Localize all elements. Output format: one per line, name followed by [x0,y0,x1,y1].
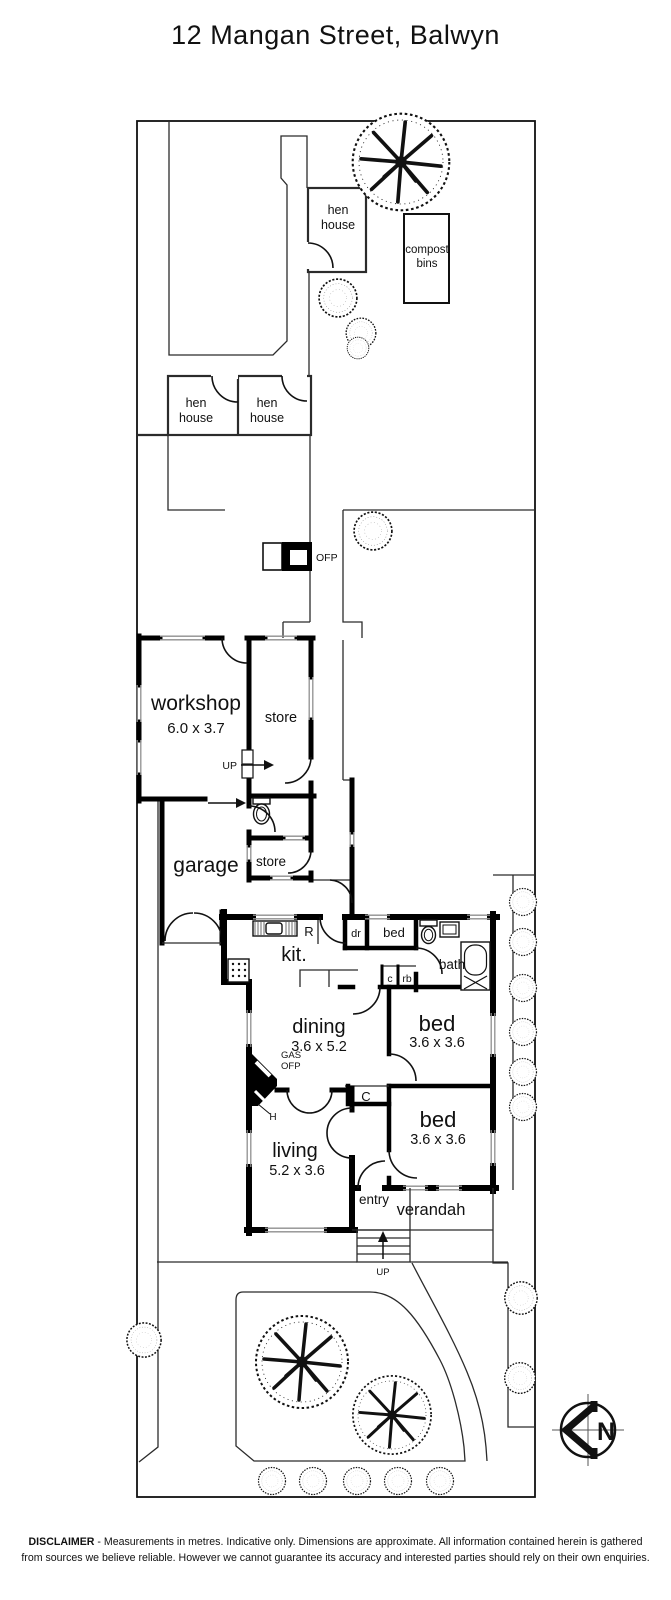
living-dims: 5.2 x 3.6 [269,1163,325,1179]
floor-plan-page: 12 Mangan Street, Balwyn [0,0,671,1600]
tree-icon [353,1376,431,1454]
workshop-dims: 6.0 x 3.7 [167,720,225,737]
bed-one-dims: 3.6 x 3.6 [409,1035,465,1051]
bush-icon [259,1468,286,1495]
compost-bins-label: compost [405,244,449,256]
entry-label: entry [359,1192,389,1207]
bush-icon [354,512,392,550]
bush-icon [510,975,537,1002]
kitchen-label: kit. [281,944,307,966]
hen-house-left-label: house [179,411,213,425]
living-label: living [272,1140,318,1162]
bush-icon [510,1019,537,1046]
garage-label: garage [173,854,238,877]
hen-house-top-label: house [321,218,355,232]
bush-icon [347,337,369,359]
verandah-label: verandah [397,1201,466,1219]
compost-bins-label: bins [416,258,437,270]
fridge-label: R [304,924,313,939]
hen-house-left-label: hen [186,396,207,410]
bush-icon [300,1468,327,1495]
compass-rose: N [552,1394,624,1466]
drawers-label: dr [351,928,361,940]
gas-ofp-label: GAS [281,1050,301,1061]
hen-house-right-label: house [250,411,284,425]
basin-icon [440,922,459,937]
bath-label: bath [439,957,465,972]
bush-icon [427,1468,454,1495]
bathtub-icon [461,942,490,990]
bed-two-dims: 3.6 x 3.6 [410,1132,466,1148]
dining-label: dining [292,1016,345,1038]
hall-cupboard-label: C [361,1089,370,1104]
bush-icon [344,1468,371,1495]
ofp-label: OFP [316,552,338,564]
bush-icon [319,279,357,317]
up-steps-label: UP [376,1267,389,1278]
gas-ofp-label: OFP [281,1061,301,1072]
bush-icon [385,1468,412,1495]
cupboard-small-label: c [387,973,392,985]
bush-icon [510,1094,537,1121]
disclaimer-bold: DISCLAIMER [29,1536,95,1548]
bush-icon [510,889,537,916]
hearth-label: H [269,1112,276,1123]
toilet-icon [420,920,437,944]
bush-icon [505,1363,536,1394]
bush-icon [127,1323,161,1357]
bush-icon [505,1282,537,1314]
disclaimer: DISCLAIMER - Measurements in metres. Ind… [0,1534,671,1567]
ofp-marker [263,542,312,571]
bush-icon [510,1059,537,1086]
floor-plan: N hen house compost bins hen house hen h… [0,0,671,1600]
store-lower-label: store [256,854,286,869]
bush-icon [510,929,537,956]
disclaimer-line-2: from sources we believe reliable. Howeve… [0,1550,671,1566]
bed-two-label: bed [420,1107,457,1132]
property-boundary [137,121,535,1497]
tree-icon [256,1316,348,1408]
tree-icon [353,114,450,211]
toilet-icon [253,798,270,824]
store-upper-label: store [265,710,297,726]
sink-icon [253,921,297,936]
workshop-label: workshop [150,692,241,715]
hen-house-right-label: hen [257,396,278,410]
bed-one-label: bed [419,1011,456,1036]
stove-icon [228,959,249,982]
north-label: N [597,1418,615,1446]
up-workshop-label: UP [222,760,237,772]
robe-label: rb [402,973,411,985]
hen-house-top-label: hen [328,203,349,217]
bed-nook-label: bed [383,925,405,940]
disclaimer-line-1: DISCLAIMER - Measurements in metres. Ind… [0,1534,671,1550]
